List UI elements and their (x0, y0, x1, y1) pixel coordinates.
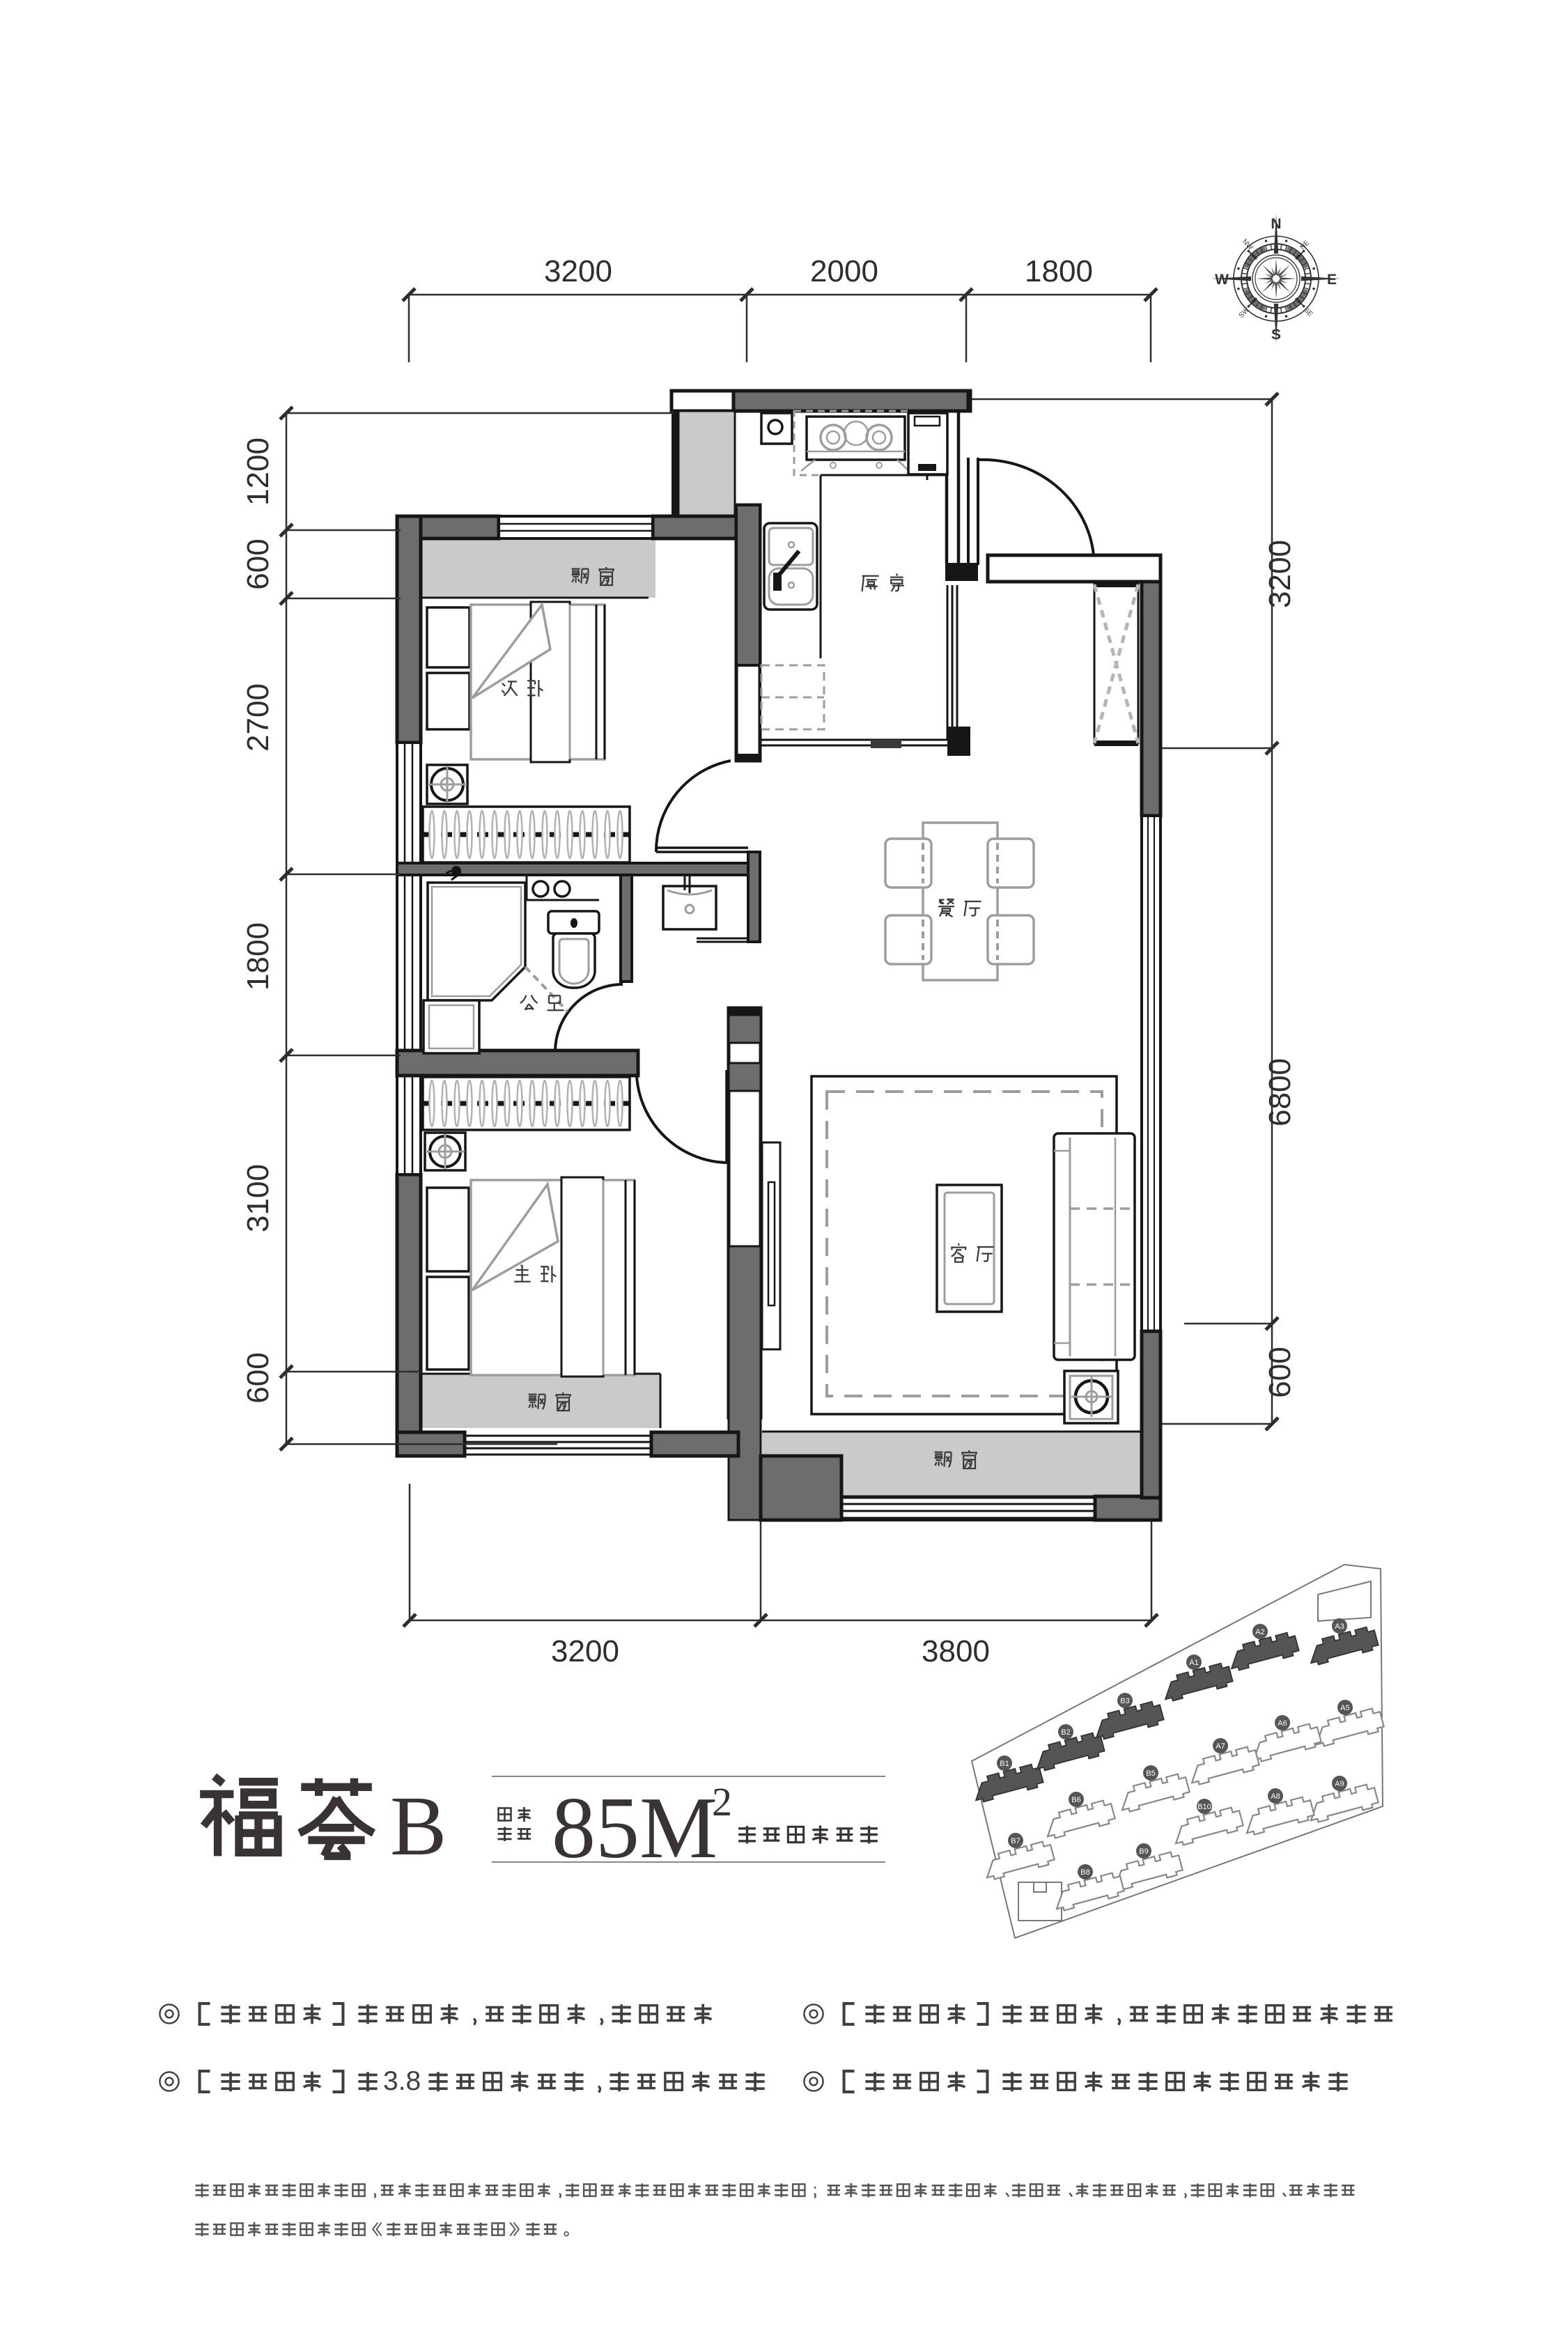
svg-text:B: B (390, 1779, 447, 1873)
svg-text:A7: A7 (1216, 1742, 1225, 1751)
svg-text:B1: B1 (1000, 1760, 1009, 1768)
svg-text:3200: 3200 (544, 254, 612, 288)
svg-text:B2: B2 (1061, 1728, 1070, 1737)
svg-text:600: 600 (1263, 1347, 1297, 1397)
svg-text:A5: A5 (1340, 1704, 1349, 1712)
svg-text:SW: SW (1238, 306, 1252, 320)
svg-text:B3: B3 (1120, 1697, 1129, 1705)
svg-text:A1: A1 (1189, 1659, 1198, 1667)
svg-text:600: 600 (241, 1352, 275, 1403)
svg-text:1200: 1200 (241, 437, 275, 506)
svg-text:B7: B7 (1011, 1837, 1020, 1845)
svg-text:1800: 1800 (1025, 254, 1093, 288)
svg-text:A6: A6 (1278, 1719, 1287, 1728)
svg-text:B6: B6 (1071, 1796, 1080, 1804)
svg-text:3.8: 3.8 (383, 2066, 421, 2096)
svg-text:NE: NE (1298, 239, 1311, 251)
svg-text:A9: A9 (1335, 1780, 1344, 1788)
svg-text:3200: 3200 (1263, 540, 1297, 608)
svg-text:B8: B8 (1080, 1868, 1089, 1877)
svg-text:6800: 6800 (1263, 1058, 1297, 1126)
svg-text:3100: 3100 (241, 1164, 275, 1232)
svg-text:NW: NW (1241, 238, 1255, 251)
svg-text:A8: A8 (1271, 1792, 1280, 1801)
svg-text:N: N (1271, 216, 1281, 232)
svg-text:85M: 85M (552, 1780, 717, 1877)
svg-text:2700: 2700 (241, 683, 275, 752)
svg-text:A2: A2 (1255, 1628, 1264, 1636)
svg-text:600: 600 (241, 538, 275, 589)
svg-text:B5: B5 (1146, 1769, 1155, 1778)
svg-text:B9: B9 (1139, 1847, 1148, 1856)
svg-text:SE: SE (1302, 307, 1314, 318)
svg-text:A3: A3 (1335, 1622, 1344, 1631)
svg-text:E: E (1327, 272, 1337, 288)
svg-text:2: 2 (712, 1779, 732, 1824)
svg-text:2000: 2000 (810, 254, 878, 288)
svg-text:1800: 1800 (241, 922, 275, 991)
svg-text:W: W (1215, 272, 1229, 288)
svg-text:B10: B10 (1197, 1803, 1211, 1811)
svg-text:3800: 3800 (922, 1634, 990, 1668)
svg-text:3200: 3200 (551, 1634, 619, 1668)
svg-text:S: S (1271, 327, 1281, 343)
